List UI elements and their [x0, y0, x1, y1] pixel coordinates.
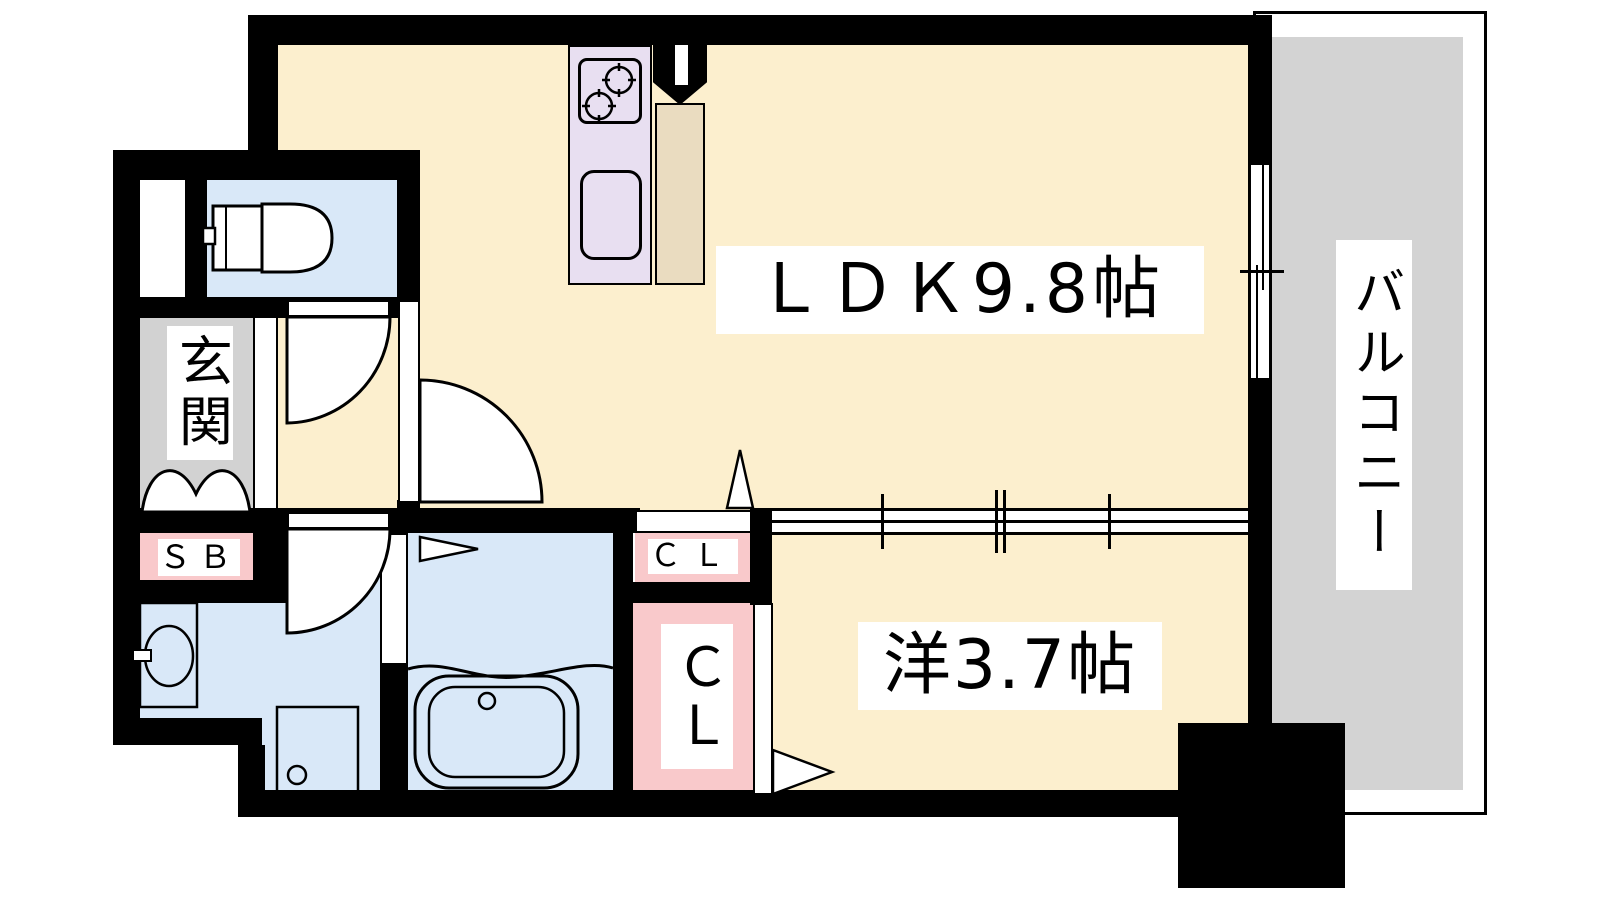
ldk-label: ＬＤＫ9.8帖: [716, 246, 1204, 334]
floor-plan: ＬＤＫ9.8帖 洋3.7帖 バルコニー 玄関 ＳＢ ＣＬ ＣＬ: [0, 0, 1600, 900]
toilet-door-swing-arc: [287, 317, 390, 423]
entrance-label: 玄関: [167, 326, 233, 460]
closet-small-label: ＣＬ: [648, 539, 738, 574]
ldk-label-text: ＬＤＫ9.8帖: [756, 254, 1164, 325]
western-room-label: 洋3.7帖: [858, 622, 1162, 710]
toilet-tank: [213, 206, 262, 270]
toilet-icon: [262, 204, 332, 272]
balcony-label: バルコニー: [1336, 240, 1412, 590]
western-room-label-text: 洋3.7帖: [883, 630, 1137, 701]
bathtub-inner: [429, 687, 564, 777]
washer-drain: [288, 766, 306, 784]
toilet-flush-handle: [203, 228, 215, 244]
entrance-label-text: 玄関: [172, 333, 229, 453]
closet-large-label: ＣＬ: [661, 624, 733, 769]
ldk-door-swing-arc: [420, 380, 542, 502]
washroom-door-swing-arc: [287, 529, 390, 633]
balcony-label-text: バルコニー: [1347, 265, 1402, 565]
closet-door-triangle: [773, 750, 832, 794]
shoe-box-label: ＳＢ: [158, 539, 240, 576]
closet-small-label-text: ＣＬ: [650, 540, 736, 573]
vanity-sink-icon: [145, 626, 193, 686]
closet-large-label-text: ＣＬ: [669, 639, 726, 755]
bathroom-door-triangle: [420, 537, 478, 561]
vanity-faucet: [133, 650, 151, 661]
washing-machine-pan-icon: [277, 707, 358, 795]
partition-door-triangle: [727, 450, 753, 508]
entrance-door-arcs: [142, 471, 250, 512]
bathtub-faucet: [479, 693, 495, 709]
shoe-box-label-text: ＳＢ: [159, 541, 239, 575]
